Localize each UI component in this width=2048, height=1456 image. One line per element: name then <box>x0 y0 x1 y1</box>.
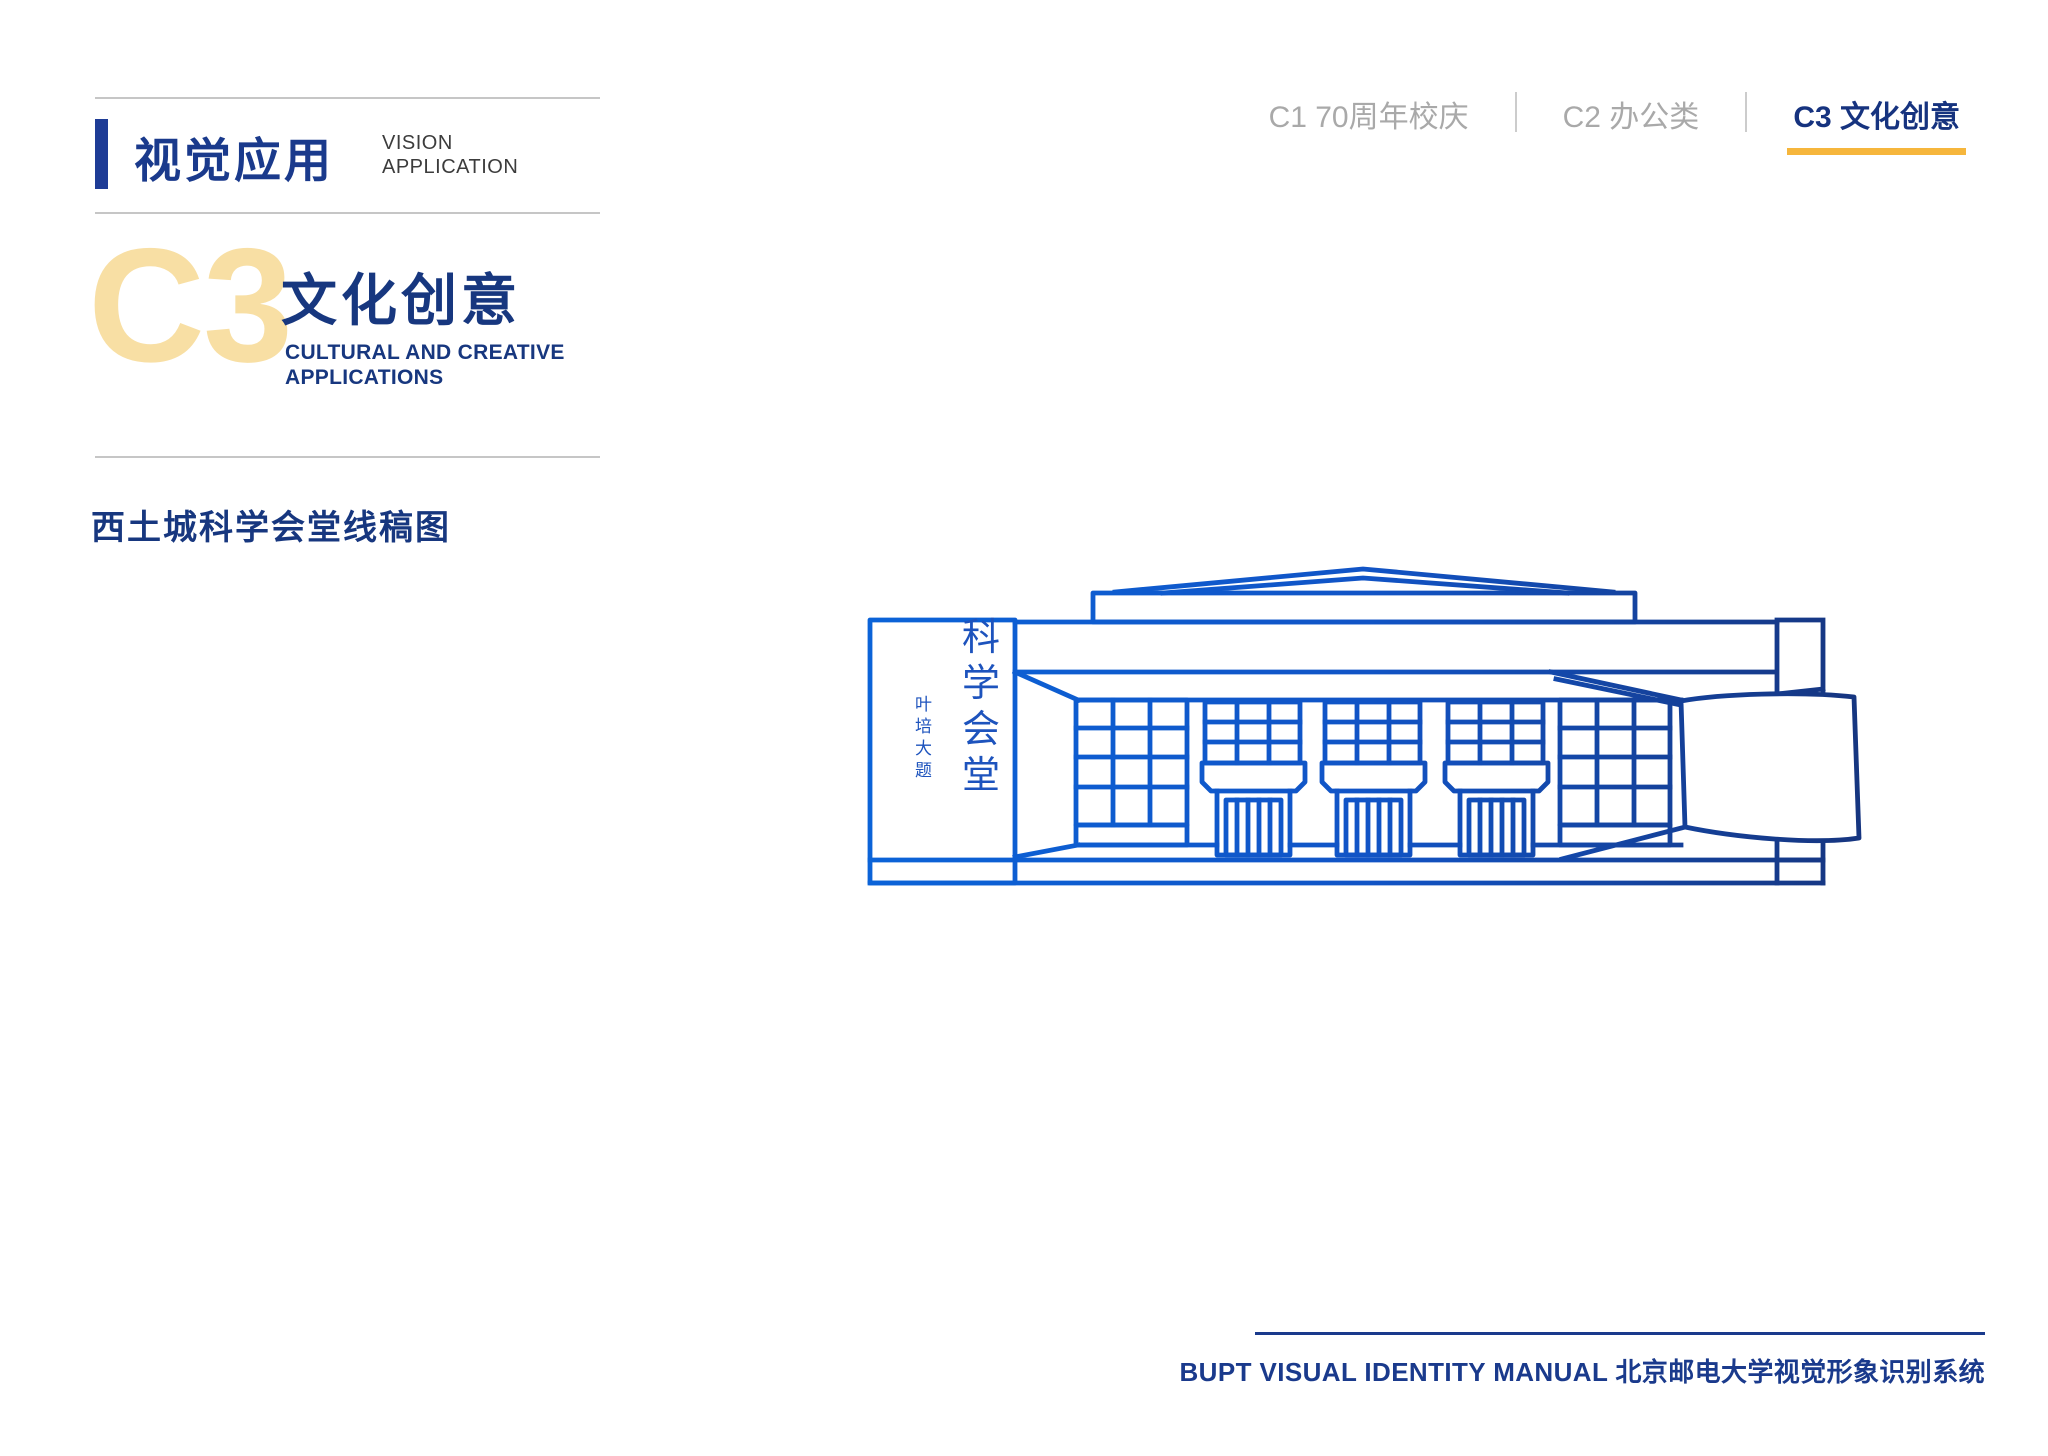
window-bay-left <box>1076 700 1187 845</box>
tab-c3-cultural-creative[interactable]: C3 文化创意 <box>1787 92 1966 155</box>
door-bay-3 <box>1445 702 1548 855</box>
entablature-band <box>1015 622 1777 672</box>
door-bay-2 <box>1322 702 1425 855</box>
section-rule <box>95 456 600 458</box>
door-bay-1 <box>1202 702 1305 855</box>
section-name-en-line2: APPLICATIONS <box>285 365 565 390</box>
window-bay-right <box>1560 700 1670 845</box>
science-hall-line-drawing: 科学会堂 叶培大题 <box>865 558 1865 898</box>
section-name-en-line1: CULTURAL AND CREATIVE <box>285 340 565 365</box>
attic-block <box>1093 593 1635 622</box>
section-title-en-line1: VISION <box>382 131 518 155</box>
tab-divider <box>1515 92 1517 132</box>
section-title-en-line2: APPLICATION <box>382 155 518 179</box>
page-title: 西土城科学会堂线稿图 <box>91 500 451 549</box>
calligraphy-signature: 叶培大题 <box>915 695 932 781</box>
sign-panel <box>870 620 1015 883</box>
roof <box>1115 569 1613 593</box>
section-code: C3 <box>88 225 291 387</box>
section-name-zh: 文化创意 <box>281 256 521 337</box>
left-perspective <box>1015 672 1078 857</box>
section-title-en: VISION APPLICATION <box>382 131 518 179</box>
calligraphy-title: 科学会堂 <box>962 615 1000 797</box>
tab-c1-anniversary[interactable]: C1 70周年校庆 <box>1263 92 1475 155</box>
section-title-zh: 视觉应用 <box>134 122 334 191</box>
accent-bar <box>95 119 108 189</box>
footer-text: BUPT VISUAL IDENTITY MANUAL 北京邮电大学视觉形象识别… <box>1180 1352 1986 1389</box>
chapter-tabs: C1 70周年校庆 C2 办公类 C3 文化创意 <box>1263 92 1966 155</box>
tab-divider <box>1745 92 1747 132</box>
header-bottom-rule <box>95 212 600 214</box>
header-top-rule <box>95 97 600 99</box>
footer-rule <box>1255 1332 1985 1335</box>
curtain-banner <box>1681 694 1859 841</box>
tab-c2-office[interactable]: C2 办公类 <box>1557 92 1706 155</box>
manual-page: 视觉应用 VISION APPLICATION C1 70周年校庆 C2 办公类… <box>0 0 2048 1456</box>
section-name-en: CULTURAL AND CREATIVE APPLICATIONS <box>285 340 565 390</box>
